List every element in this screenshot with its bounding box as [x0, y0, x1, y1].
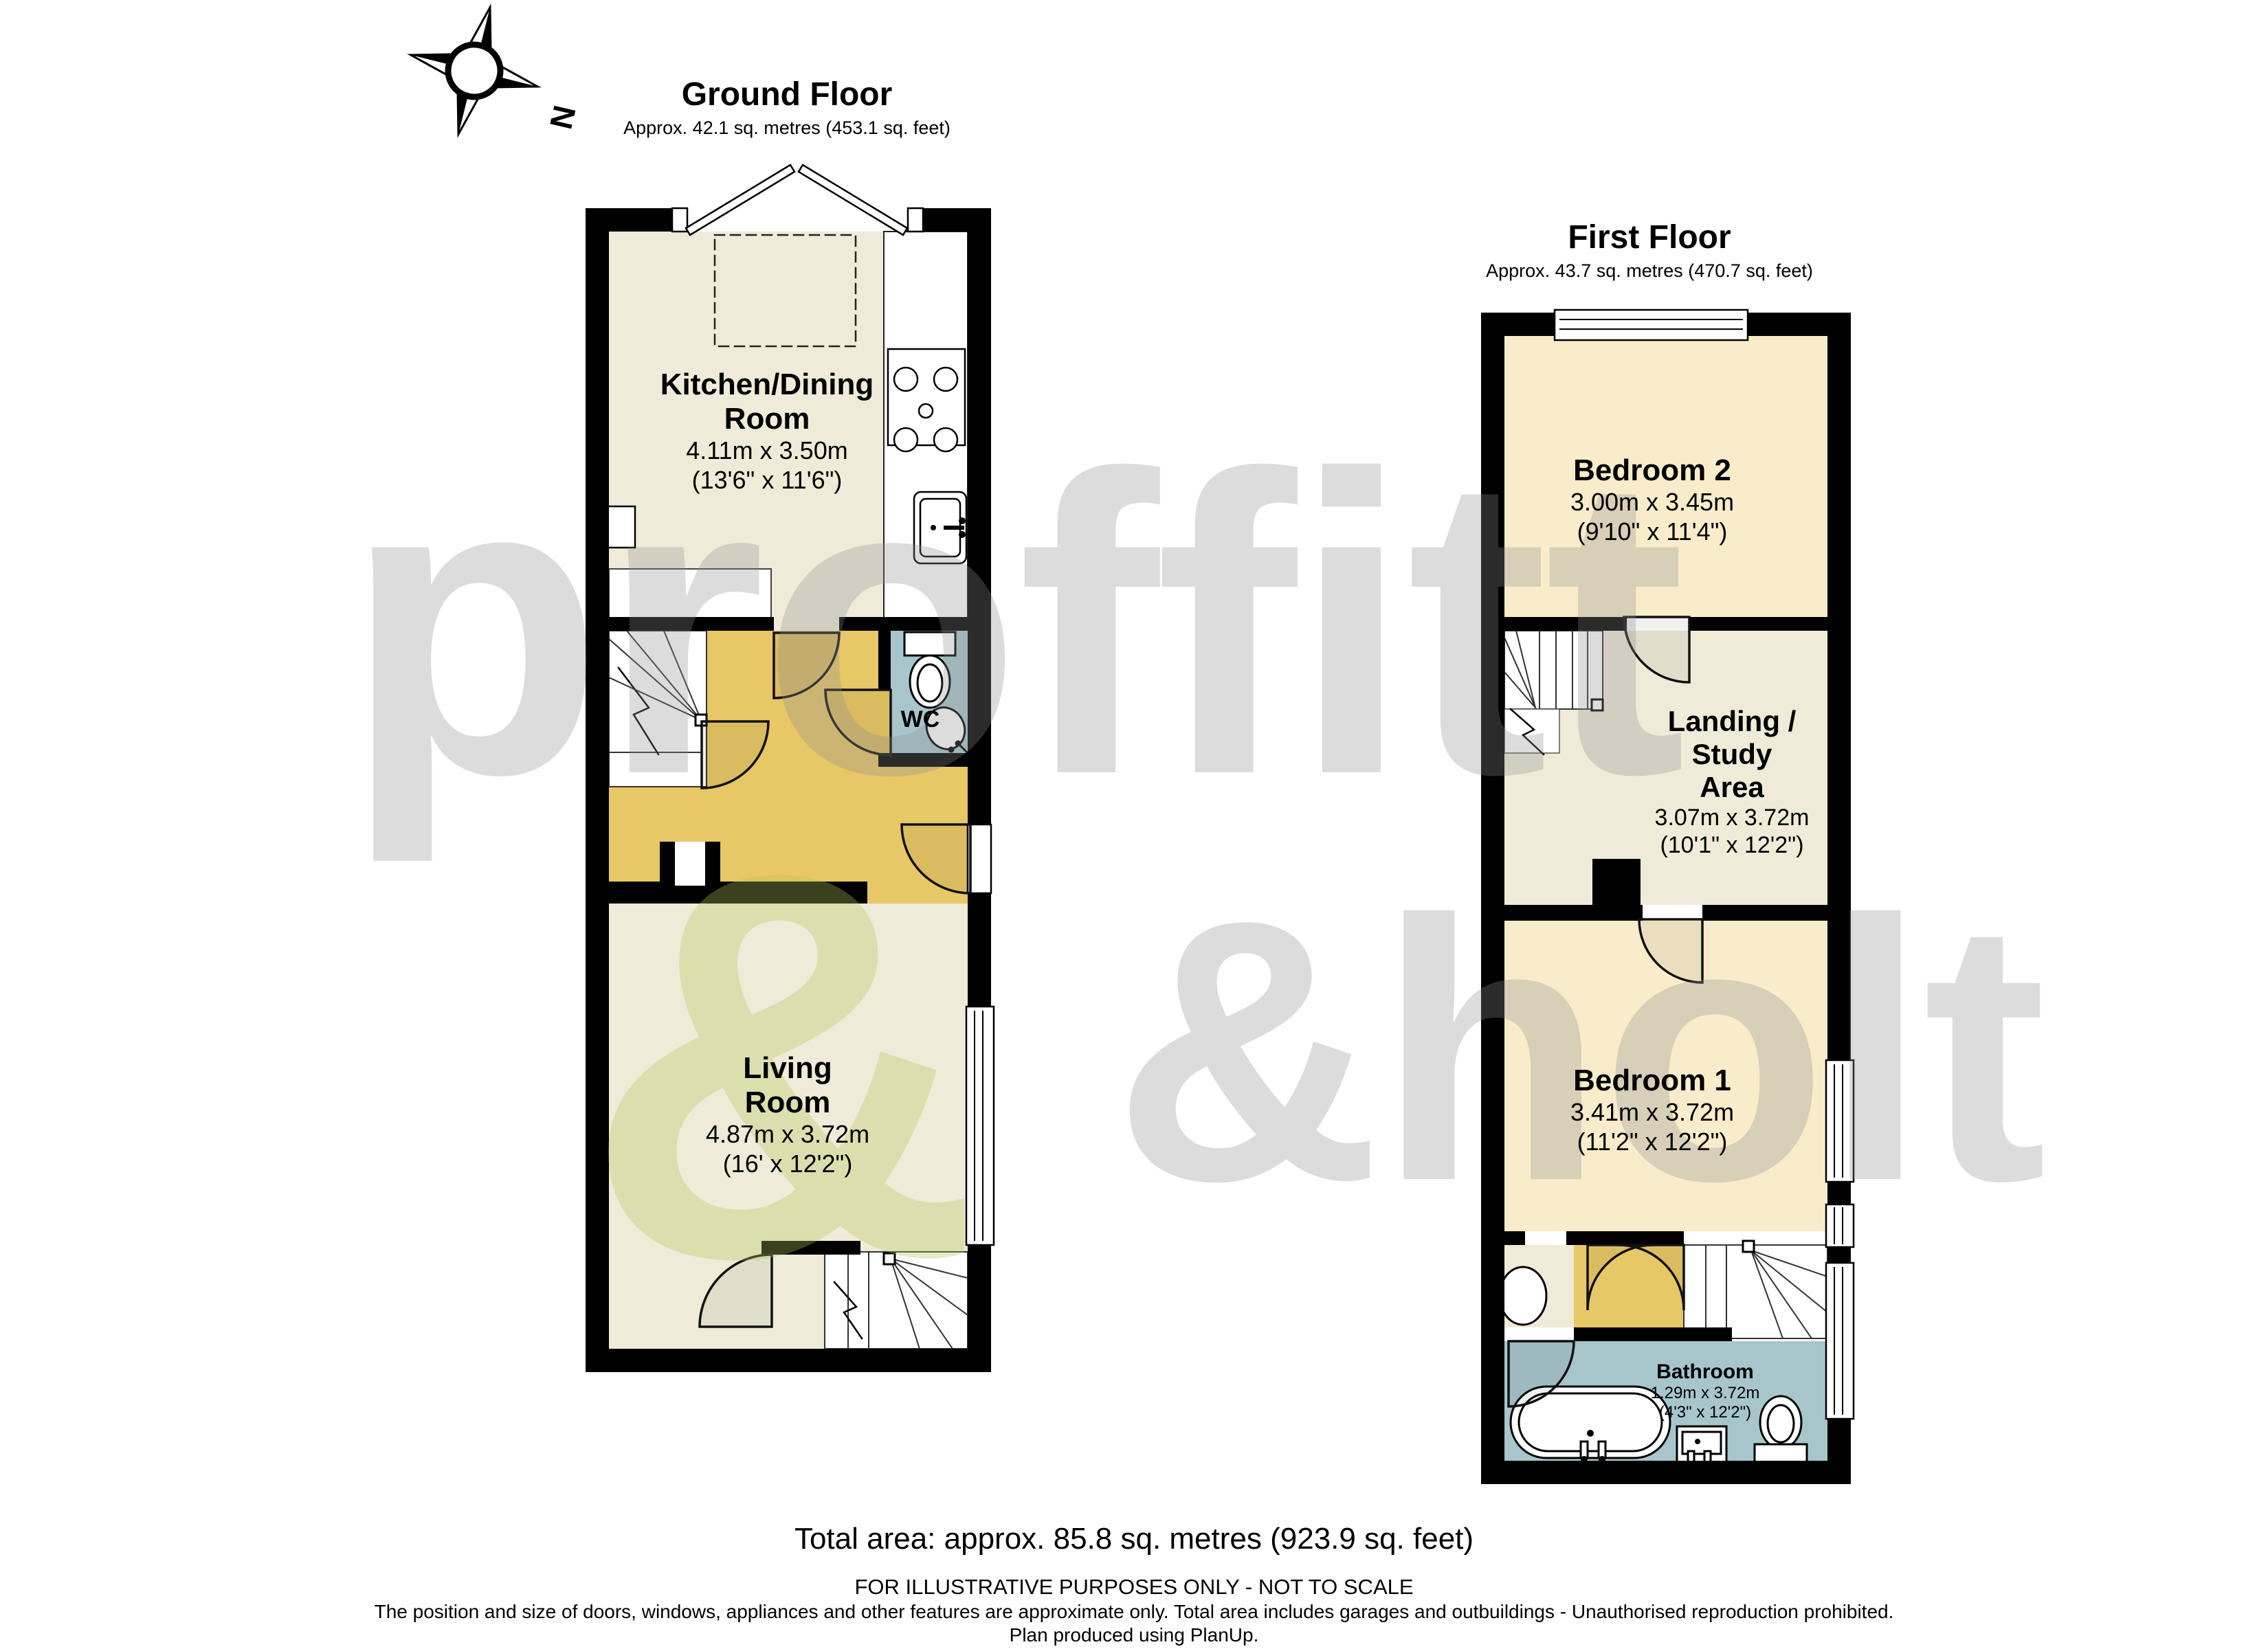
ground-stairs-hall [609, 631, 707, 787]
floorplan-drawing [0, 0, 2268, 1649]
first-floor-header: First Floor Approx. 43.7 sq. metres (470… [1443, 218, 1856, 282]
ground-floor-title: Ground Floor [581, 76, 993, 113]
room-dims-imperial: (16' x 12'2") [616, 1149, 959, 1178]
bedroom1-window [1826, 1060, 1854, 1182]
ground-stairs-living [825, 1252, 968, 1349]
ground-floor-header: Ground Floor Approx. 42.1 sq. metres (45… [581, 76, 993, 139]
bathroom-label: Bathroom 1.29m x 3.72m (4'3" x 12'2") [1602, 1360, 1808, 1422]
ground-floor-subtitle: Approx. 42.1 sq. metres (453.1 sq. feet) [581, 117, 993, 139]
kitchen-nook [609, 569, 771, 622]
room-name: Kitchen/Dining Room [595, 368, 939, 436]
room-dims-metric: 3.41m x 3.72m [1480, 1098, 1824, 1127]
room-dims-metric: 3.00m x 3.45m [1480, 488, 1824, 517]
bedroom2-label: Bedroom 2 3.00m x 3.45m (9'10" x 11'4") [1480, 453, 1824, 546]
total-area-text: Total area: approx. 85.8 sq. metres (923… [0, 1522, 2268, 1556]
room-dims-metric: 4.87m x 3.72m [616, 1120, 959, 1149]
room-dims-imperial: (11'2" x 12'2") [1480, 1128, 1824, 1156]
room-dims-imperial: (4'3" x 12'2") [1602, 1403, 1808, 1422]
room-name: Landing / Study Area [1594, 705, 1869, 804]
compass-icon [395, 0, 553, 150]
living-room-label: Living Room 4.87m x 3.72m (16' x 12'2") [616, 1051, 959, 1178]
bathroom-window [1826, 1263, 1854, 1419]
room-name: Living Room [616, 1051, 959, 1120]
stairs-window [1826, 1204, 1854, 1247]
disclaimer-details: The position and size of doors, windows,… [0, 1601, 2268, 1623]
produced-by-text: Plan produced using PlanUp. [0, 1624, 2268, 1646]
living-window [966, 1007, 994, 1245]
french-doors [672, 165, 923, 235]
first-stairs-down [1684, 1241, 1827, 1338]
room-dims-metric: 4.11m x 3.50m [595, 436, 939, 465]
ground-floor-plan [586, 165, 994, 1372]
first-floor-title: First Floor [1443, 218, 1856, 256]
kitchen-sink [914, 492, 966, 563]
bedroom1-label: Bedroom 1 3.41m x 3.72m (11'2" x 12'2") [1480, 1064, 1824, 1156]
room-dims-imperial: (10'1" x 12'2") [1594, 831, 1869, 859]
room-dims-metric: 3.07m x 3.72m [1594, 804, 1869, 831]
room-name: Bedroom 1 [1480, 1064, 1824, 1098]
floorplan-page: { "compass": { "north_label": "N" }, "gr… [0, 0, 2268, 1649]
bedroom2-window [1555, 310, 1748, 340]
first-floor-subtitle: Approx. 43.7 sq. metres (470.7 sq. feet) [1443, 260, 1856, 282]
room-dims-metric: 1.29m x 3.72m [1602, 1384, 1808, 1403]
landing-label: Landing / Study Area 3.07m x 3.72m (10'1… [1594, 705, 1869, 859]
room-dims-imperial: (13'6" x 11'6") [595, 466, 939, 495]
room-dims-imperial: (9'10" x 11'4") [1480, 517, 1824, 546]
room-name: Bathroom [1602, 1360, 1808, 1384]
nook-basin [1500, 1267, 1546, 1325]
wc-label: WC [900, 706, 941, 733]
kitchen-label: Kitchen/Dining Room 4.11m x 3.50m (13'6"… [595, 368, 939, 495]
room-name: Bedroom 2 [1480, 453, 1824, 488]
disclaimer-scale: FOR ILLUSTRATIVE PURPOSES ONLY - NOT TO … [0, 1575, 2268, 1600]
chimney-recess [675, 842, 705, 886]
